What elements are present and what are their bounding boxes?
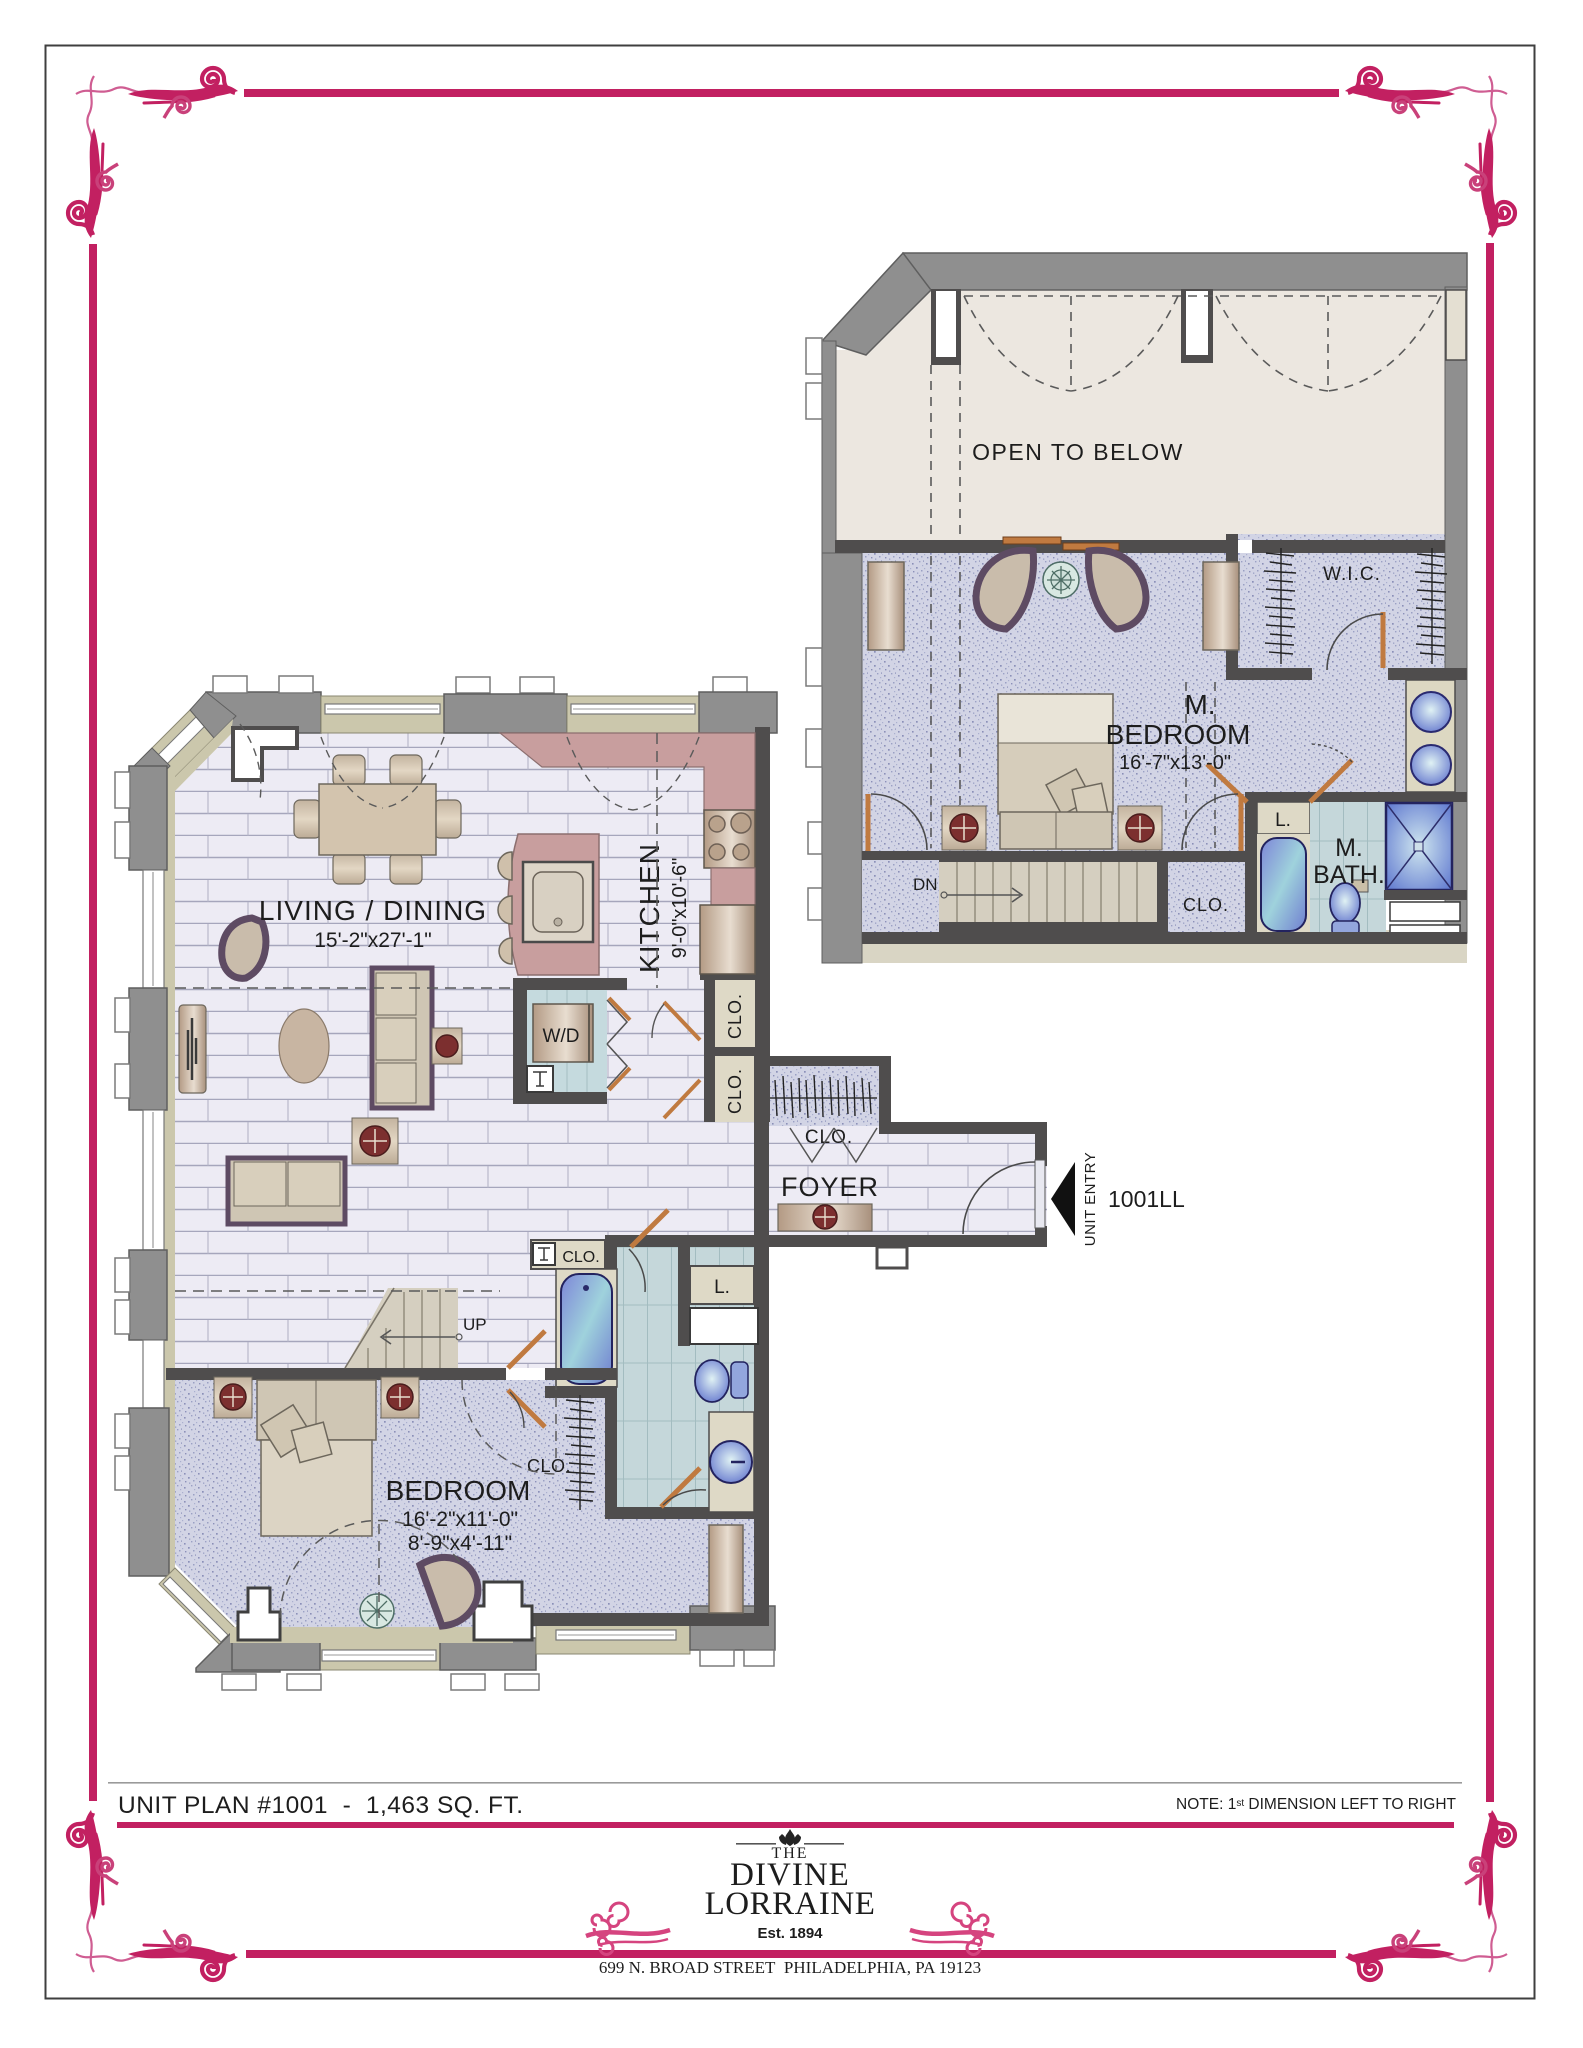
svg-text:L.: L. bbox=[714, 1277, 730, 1298]
svg-text:BATH.: BATH. bbox=[1313, 861, 1385, 889]
svg-text:W/D: W/D bbox=[543, 1026, 580, 1047]
svg-text:CLO.: CLO. bbox=[725, 1068, 745, 1114]
svg-text:BEDROOM: BEDROOM bbox=[1106, 719, 1251, 750]
svg-text:1001LL: 1001LL bbox=[1108, 1186, 1185, 1212]
svg-text:Est. 1894: Est. 1894 bbox=[757, 1925, 823, 1942]
svg-text:DN: DN bbox=[913, 875, 938, 894]
svg-text:8'-9"x4'-11": 8'-9"x4'-11" bbox=[408, 1532, 512, 1555]
svg-text:UP: UP bbox=[463, 1315, 487, 1334]
svg-text:CLO.: CLO. bbox=[725, 993, 745, 1039]
svg-text:KITCHEN: KITCHEN bbox=[634, 843, 665, 973]
svg-text:CLO.: CLO. bbox=[805, 1127, 853, 1148]
svg-text:16'-2"x11'-0": 16'-2"x11'-0" bbox=[402, 1508, 518, 1531]
svg-text:UNIT PLAN #1001 - 1,463 SQ.: UNIT PLAN #1001 - 1,463 SQ. FT. bbox=[118, 1792, 524, 1819]
svg-text:L.: L. bbox=[1275, 810, 1291, 831]
svg-text:CLO.: CLO. bbox=[562, 1249, 599, 1266]
svg-text:9'-0"x10'-6": 9'-0"x10'-6" bbox=[669, 858, 691, 959]
svg-text:CLO.: CLO. bbox=[1183, 895, 1229, 915]
svg-text:FOYER: FOYER bbox=[781, 1172, 879, 1202]
svg-text:15'-2"x27'-1": 15'-2"x27'-1" bbox=[314, 929, 432, 952]
svg-text:M.: M. bbox=[1335, 834, 1363, 862]
svg-text:LORRAINE: LORRAINE bbox=[705, 1886, 876, 1922]
svg-text:699 N. BROAD STREET PHILADELP: 699 N. BROAD STREET PHILADELPHIA, PA 191… bbox=[599, 1958, 981, 1977]
svg-text:BEDROOM: BEDROOM bbox=[386, 1475, 531, 1506]
svg-text:LIVING / DINING: LIVING / DINING bbox=[259, 895, 487, 926]
svg-text:UNIT ENTRY: UNIT ENTRY bbox=[1082, 1152, 1099, 1246]
svg-text:16'-7"x13'-0": 16'-7"x13'-0" bbox=[1119, 752, 1231, 774]
svg-text:W.I.C.: W.I.C. bbox=[1323, 564, 1381, 585]
svg-text:M.: M. bbox=[1184, 689, 1215, 720]
svg-text:OPEN TO BELOW: OPEN TO BELOW bbox=[972, 439, 1184, 465]
svg-text:NOTE: 1st DIMENSION LEFT TO RI: NOTE: 1st DIMENSION LEFT TO RIGHT bbox=[1176, 1796, 1456, 1813]
